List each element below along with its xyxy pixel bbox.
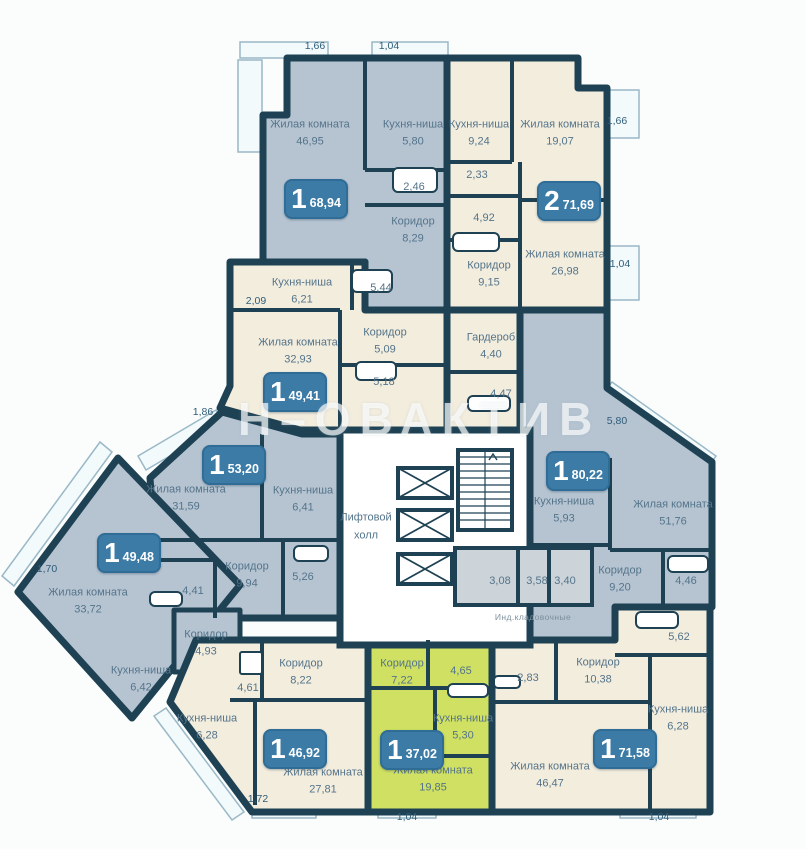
room-label: Коридор9,94 xyxy=(225,559,268,592)
room-label: Коридор8,22 xyxy=(279,656,322,689)
floor-plan: Жилая комната46,95 Кухня-ниша5,80 Кухня-… xyxy=(0,0,806,849)
apartment-badge: 153,20 xyxy=(202,445,266,485)
apartment-badge: 149,41 xyxy=(263,372,327,412)
room-label: Жилая комната46,95 xyxy=(270,117,349,150)
dimension-label: 1,66 xyxy=(305,40,325,52)
balcony xyxy=(238,60,262,152)
room-label: Кухня-ниша9,24 xyxy=(449,117,509,150)
room-label: Жилая комната26,98 xyxy=(525,247,604,280)
dimension-label: 1,04 xyxy=(379,40,399,52)
bathtub-icon xyxy=(150,592,182,606)
room-label: 5,62 xyxy=(668,629,689,646)
room-label: 4,61 xyxy=(237,680,258,697)
room-label: Кухня-ниша6,42 xyxy=(111,663,171,696)
room-label: Кухня-ниша5,93 xyxy=(534,494,594,527)
room-label: Жилая комната51,76 xyxy=(633,497,712,530)
room-label: Гардероб4,40 xyxy=(467,330,515,363)
room-label: 5,18 xyxy=(373,374,394,391)
dimension-label: 1,04 xyxy=(610,258,630,270)
room-label: Коридор9,15 xyxy=(467,258,510,291)
room-label: Кухня-ниша6,21 xyxy=(272,275,332,308)
bathtub-icon xyxy=(294,546,328,561)
room-label: Жилая комната33,72 xyxy=(48,585,127,618)
shower-icon xyxy=(240,652,262,674)
apartment-badge: 180,22 xyxy=(546,451,610,491)
bathtub-icon xyxy=(494,676,520,688)
room-label: 4,46 xyxy=(675,573,696,590)
bathtub-icon xyxy=(448,684,488,697)
room-label: Кухня-ниша6,41 xyxy=(273,483,333,516)
dimension-label: 1,66 xyxy=(607,115,627,127)
apartment-badge: 149,48 xyxy=(97,533,161,573)
room-label: Жилая комната19,07 xyxy=(520,117,599,150)
balcony xyxy=(609,246,639,300)
room-label: Коридор5,09 xyxy=(363,325,406,358)
bathtub-icon xyxy=(453,233,499,251)
elevator-shafts xyxy=(398,468,452,584)
room-label: Кухня-ниша6,28 xyxy=(177,711,237,744)
dimension-label: 1,04 xyxy=(397,811,417,823)
room-label: Коридор7,22 xyxy=(380,656,423,689)
apartment-badge: 271,69 xyxy=(537,181,601,221)
dimension-label: 1,70 xyxy=(37,563,57,575)
stairs xyxy=(458,450,512,530)
elevator-hall-label: Лифтовой холл xyxy=(340,509,391,544)
room-label: Коридор10,38 xyxy=(576,655,619,688)
room-label: 3,58 xyxy=(526,573,547,590)
apartment-badge: 146,92 xyxy=(263,729,327,769)
storage-caption: Инд.кладовочные xyxy=(495,612,571,622)
apartment-badge: 168,94 xyxy=(284,179,348,219)
room-label: 2,33 xyxy=(466,167,487,184)
room-label: Жилая комната31,59 xyxy=(146,482,225,515)
room-label: 2,83 xyxy=(517,670,538,687)
room-label: Жилая комната27,81 xyxy=(283,765,362,798)
room-label: 4,47 xyxy=(490,386,511,403)
room-label: Кухня-ниша6,28 xyxy=(648,702,708,735)
dimension-label: 2,09 xyxy=(246,295,266,307)
room-label: 5,44 xyxy=(370,280,391,297)
room-label: Коридор9,20 xyxy=(598,563,641,596)
room-label: Коридор4,93 xyxy=(184,627,227,660)
room-label: Жилая комната46,47 xyxy=(510,759,589,792)
dimension-label: 1,86 xyxy=(193,406,213,418)
bathtub-icon xyxy=(636,612,678,628)
room-label: 3,08 xyxy=(489,573,510,590)
dimension-label: 5,80 xyxy=(607,415,627,427)
apartment-badge: 171,58 xyxy=(593,729,657,769)
dimension-label: 1,04 xyxy=(649,811,669,823)
room-label: 4,41 xyxy=(182,583,203,600)
room-label: 4,92 xyxy=(473,210,494,227)
room-label: 3,40 xyxy=(554,573,575,590)
room-label: 2,46 xyxy=(403,179,424,196)
room-label: 4,65 xyxy=(450,663,471,680)
bathtub-icon xyxy=(668,556,708,572)
dimension-label: 1,72 xyxy=(248,793,268,805)
room-label: Жилая комната32,93 xyxy=(258,335,337,368)
room-label: Кухня-ниша5,80 xyxy=(383,117,443,150)
balcony xyxy=(609,90,639,138)
apartment-badge: 137,02 xyxy=(380,730,444,770)
room-label: 5,26 xyxy=(292,569,313,586)
room-label: Коридор8,29 xyxy=(391,214,434,247)
